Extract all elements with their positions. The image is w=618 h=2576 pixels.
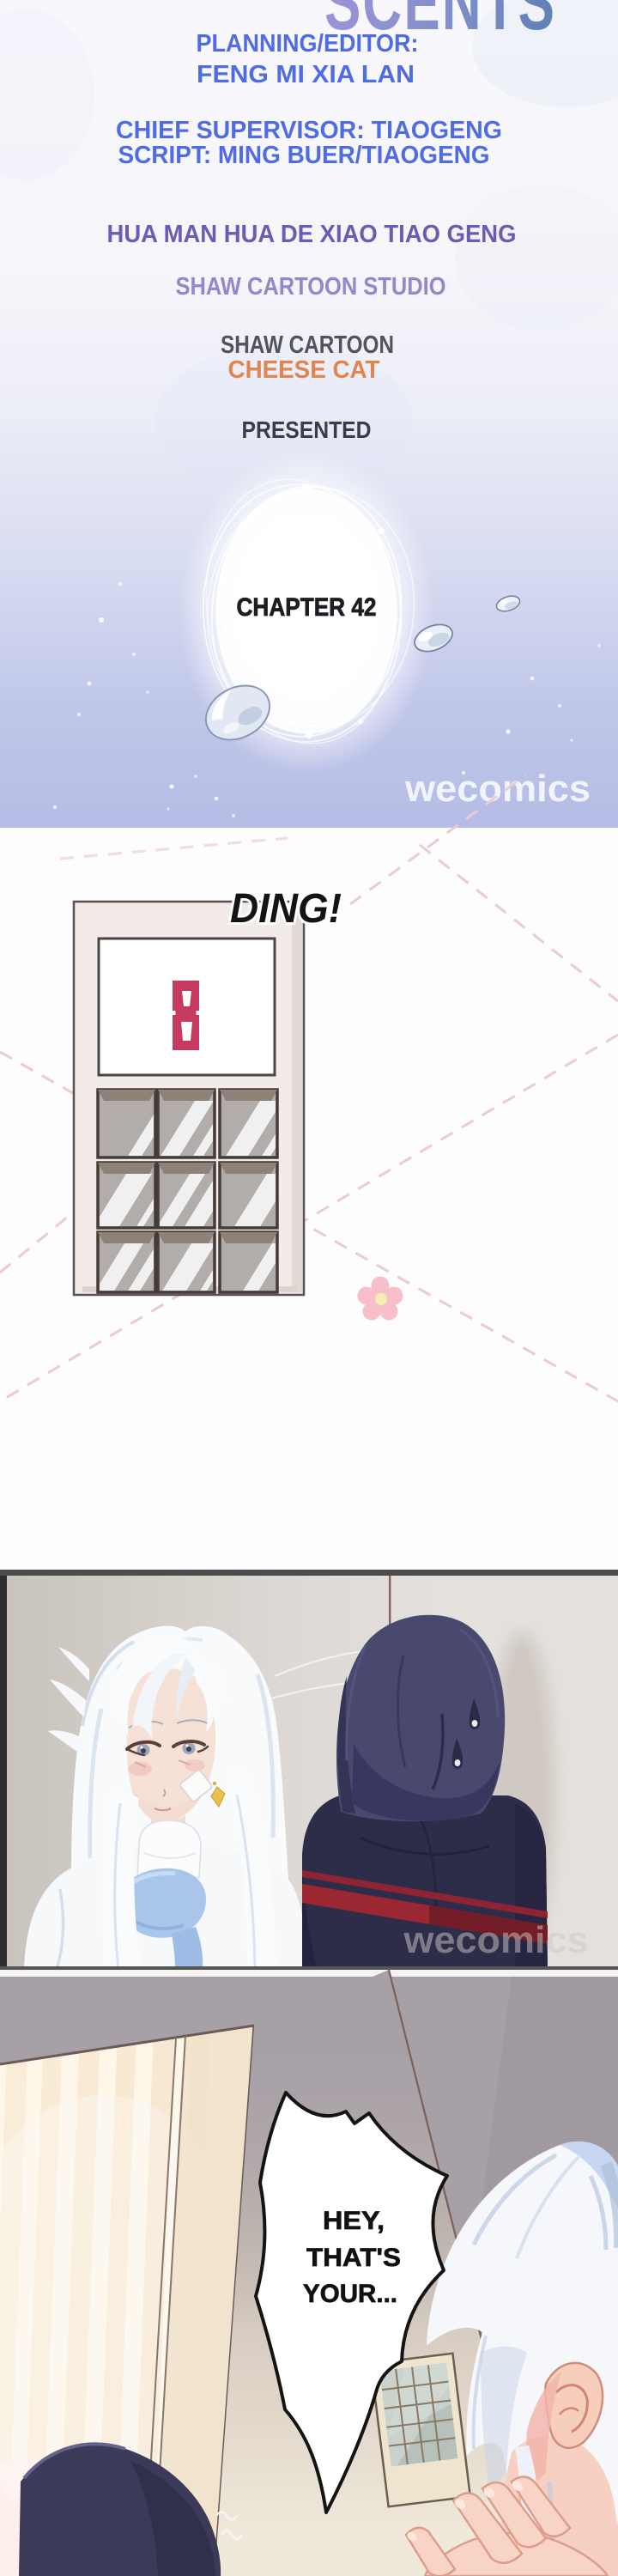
svg-text:wecomics: wecomics: [404, 768, 591, 810]
svg-text:CHEESE CAT: CHEESE CAT: [228, 356, 380, 384]
svg-text:CHAPTER 42: CHAPTER 42: [237, 593, 377, 622]
svg-text:HEY,: HEY,: [323, 2207, 385, 2235]
svg-text:CHIEF SUPERVISOR: TIAOGENG: CHIEF SUPERVISOR: TIAOGENG: [116, 117, 502, 144]
svg-text:DING!: DING!: [230, 886, 342, 932]
svg-text:SHAW CARTOON STUDIO: SHAW CARTOON STUDIO: [176, 273, 446, 301]
svg-text:PLANNING/EDITOR:: PLANNING/EDITOR:: [197, 30, 419, 58]
svg-text:HUA MAN HUA DE XIAO TIAO GENG: HUA MAN HUA DE XIAO TIAO GENG: [107, 221, 517, 248]
svg-text:SCRIPT: MING BUER/TIAOGENG: SCRIPT: MING BUER/TIAOGENG: [118, 142, 490, 169]
svg-text:wecomics: wecomics: [403, 1919, 588, 1961]
svg-text:THAT'S: THAT'S: [306, 2244, 401, 2272]
svg-text:FENG MI XIA LAN: FENG MI XIA LAN: [197, 61, 415, 88]
svg-text:PRESENTED: PRESENTED: [242, 416, 372, 443]
svg-text:YOUR...: YOUR...: [303, 2280, 397, 2308]
svg-text:SHAW CARTOON: SHAW CARTOON: [221, 331, 394, 359]
